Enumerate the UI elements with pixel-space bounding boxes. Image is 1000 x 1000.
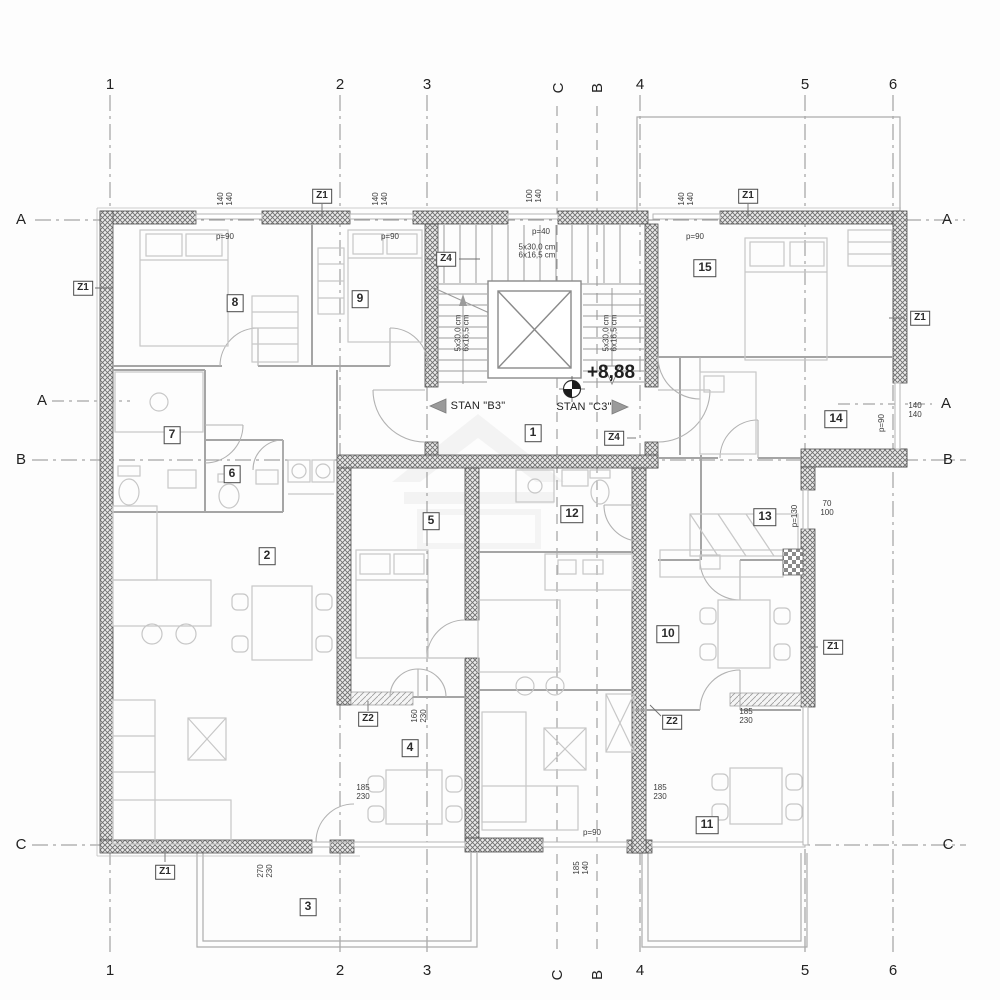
grid-label-b: B (590, 83, 606, 93)
stair-spec-label-5x30-0-cm-6x16-5-cm: 5x30,0 cm 6x16,5 cm (455, 315, 472, 352)
room-label-8: 8 (227, 294, 244, 312)
zone-label-z2: Z2 (358, 712, 378, 727)
room-label-3: 3 (300, 898, 317, 916)
grid-label-b: B (590, 970, 606, 980)
grid-label-2: 2 (336, 77, 344, 93)
grid-label-2: 2 (336, 963, 344, 979)
dim-label-140-140: 140 140 (216, 192, 234, 205)
zone-label-z1: Z1 (73, 281, 93, 296)
grid-label-b: B (943, 452, 953, 468)
dim-label-140-140: 140 140 (677, 192, 695, 205)
room-label-10: 10 (656, 625, 679, 643)
dim-label-140-140: 140 140 (908, 401, 921, 419)
opening-label-p-90: p=90 (878, 414, 886, 432)
room-label-2: 2 (259, 547, 276, 565)
grid-label-c: C (16, 837, 27, 853)
grid-label-6: 6 (889, 77, 897, 93)
zone-label-z1: Z1 (312, 189, 332, 204)
room-label-15: 15 (693, 259, 716, 277)
opening-label-p-90: p=90 (381, 233, 399, 241)
grid-label-1: 1 (106, 77, 114, 93)
grid-label-a: A (942, 212, 952, 228)
grid-label-5: 5 (801, 963, 809, 979)
opening-label-p-90: p=90 (583, 829, 601, 837)
zone-label-z1: Z1 (823, 640, 843, 655)
opening-label-p-90: p=90 (686, 233, 704, 241)
grid-label-6: 6 (889, 963, 897, 979)
grid-label-3: 3 (423, 963, 431, 979)
dim-label-100-140: 100 140 (525, 189, 543, 202)
dim-label-270-230: 270 230 (256, 864, 274, 877)
stair-spec-label-5x30-0-cm-6x16-5-cm: 5x30,0 cm 6x16,5 cm (603, 315, 620, 352)
grid-label-1: 1 (106, 963, 114, 979)
zone-label-z2: Z2 (662, 715, 682, 730)
dim-label-140-140: 140 140 (371, 192, 389, 205)
grid-label-b: B (16, 452, 26, 468)
room-label-11: 11 (696, 816, 719, 834)
room-label-13: 13 (753, 508, 776, 526)
grid-label-a: A (16, 212, 26, 228)
room-label-5: 5 (423, 512, 440, 530)
zone-label-z4: Z4 (604, 431, 624, 446)
room-label-4: 4 (402, 739, 419, 757)
room-label-14: 14 (824, 410, 847, 428)
grid-label-4: 4 (636, 963, 644, 979)
opening-label-p-40: p=40 (532, 228, 550, 236)
grid-label-c: C (550, 970, 566, 981)
dim-label-160-230: 160 230 (410, 709, 428, 722)
opening-label-p-130: p=130 (791, 505, 799, 527)
dim-label-185-230: 185 230 (356, 783, 369, 801)
grid-label-a: A (37, 393, 47, 409)
opening-label-p-90: p=90 (216, 233, 234, 241)
dim-label-185-230: 185 230 (653, 783, 666, 801)
grid-label-3: 3 (423, 77, 431, 93)
zone-label-z1: Z1 (910, 311, 930, 326)
grid-label-5: 5 (801, 77, 809, 93)
grid-label-4: 4 (636, 77, 644, 93)
zone-label-z1: Z1 (155, 865, 175, 880)
room-label-9: 9 (352, 290, 369, 308)
zone-label-z4: Z4 (436, 252, 456, 267)
apartment-right-label: STAN "C3" (556, 401, 611, 413)
room-label-1: 1 (525, 424, 542, 442)
apartment-left-label: STAN "B3" (451, 400, 506, 412)
stair-spec-label-5x30-0-cm-6x16-5-cm: 5x30,0 cm 6x16,5 cm (519, 244, 556, 261)
elevation-label: +8,88 (587, 362, 635, 384)
dim-label-185-140: 185 140 (572, 861, 590, 874)
room-label-6: 6 (224, 465, 241, 483)
room-label-12: 12 (560, 505, 583, 523)
dim-label-185-230: 185 230 (739, 707, 752, 725)
dim-label-70-100: 70 100 (820, 499, 833, 517)
room-label-7: 7 (164, 426, 181, 444)
grid-label-c: C (551, 83, 567, 94)
grid-label-c: C (943, 837, 954, 853)
floor-plan: 123CB456123CB456AABCAABC1234567891011121… (0, 0, 1000, 1000)
grid-label-a: A (941, 396, 951, 412)
zone-label-z1: Z1 (738, 189, 758, 204)
plan-labels: 123CB456123CB456AABCAABC1234567891011121… (0, 0, 1000, 1000)
